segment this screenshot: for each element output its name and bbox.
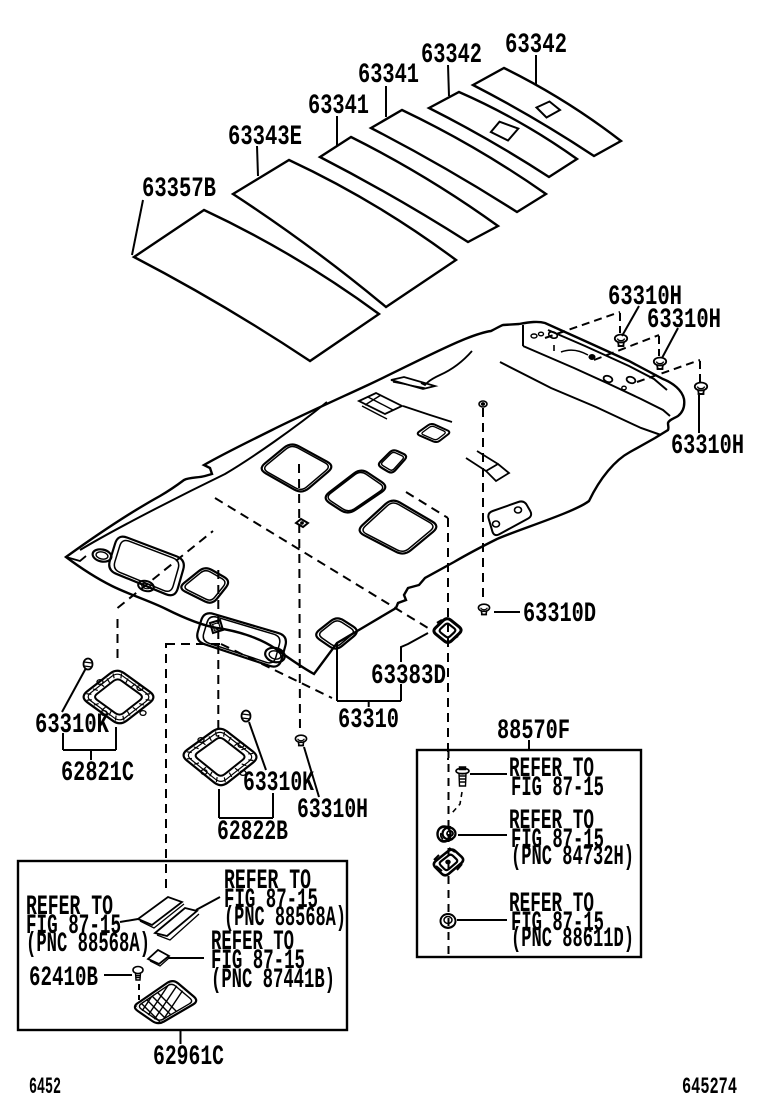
svg-text:63310H: 63310H xyxy=(647,305,721,336)
svg-text:(PNC 88611D): (PNC 88611D) xyxy=(511,924,634,955)
svg-text:63310K: 63310K xyxy=(35,710,109,741)
svg-text:63342: 63342 xyxy=(421,40,482,71)
svg-text:(PNC 87441B): (PNC 87441B) xyxy=(211,965,335,996)
svg-text:62822B: 62822B xyxy=(217,817,288,848)
svg-text:88570F: 88570F xyxy=(497,716,570,747)
svg-text:(PNC 84732H): (PNC 84732H) xyxy=(511,842,634,873)
svg-text:63341: 63341 xyxy=(358,60,419,91)
svg-text:(PNC 88568A): (PNC 88568A) xyxy=(26,929,150,960)
svg-text:645274: 645274 xyxy=(682,1074,737,1100)
svg-text:63310H: 63310H xyxy=(671,431,744,462)
svg-text:63310: 63310 xyxy=(338,705,399,736)
svg-text:6452: 6452 xyxy=(29,1074,61,1100)
svg-text:62961C: 62961C xyxy=(153,1042,224,1073)
svg-text:63310H: 63310H xyxy=(297,795,368,826)
svg-text:63310D: 63310D xyxy=(523,599,596,630)
svg-text:62821C: 62821C xyxy=(61,758,134,789)
svg-text:63343E: 63343E xyxy=(228,122,302,153)
svg-text:63341: 63341 xyxy=(308,91,369,122)
svg-text:62410B: 62410B xyxy=(29,963,98,994)
svg-text:63383D: 63383D xyxy=(371,661,446,692)
svg-text:63357B: 63357B xyxy=(142,174,216,205)
svg-text:FIG 87-15: FIG 87-15 xyxy=(511,773,604,804)
